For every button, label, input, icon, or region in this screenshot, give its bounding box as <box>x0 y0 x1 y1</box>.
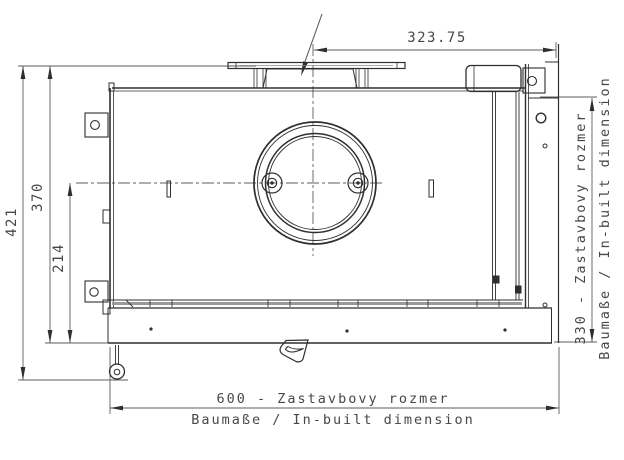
frame-holes <box>536 113 547 307</box>
dim-right-depth: 330 - Zastavbovy rozmer <box>573 112 589 345</box>
top-right-housing <box>466 66 545 94</box>
dim-top-width: 323.75 <box>407 30 467 46</box>
bracket-hole-bottom-left <box>90 288 98 296</box>
stove-body-outline <box>108 44 559 343</box>
dimension-lines <box>18 14 597 414</box>
dimension-drawing-svg: 323.75 421 370 214 330 - Zastavbovy rozm… <box>0 0 624 460</box>
dim-lower-height: 214 <box>51 243 67 273</box>
dim-bottom-width-sub: Baumaße / In-built dimension <box>191 412 475 428</box>
dim-right-depth-sub: Baumaße / In-built dimension <box>597 76 613 360</box>
dim-total-height: 421 <box>4 207 20 237</box>
plate-screws <box>149 327 506 332</box>
dim-upper-height: 370 <box>30 182 46 212</box>
bracket-hole-top-left <box>91 121 100 130</box>
left-brackets <box>85 113 110 314</box>
interior-details <box>167 92 521 300</box>
technical-drawing-canvas: 323.75 421 370 214 330 - Zastavbovy rozm… <box>0 0 624 460</box>
dim-bottom-width: 600 - Zastavbovy rozmer <box>217 391 450 407</box>
pendant <box>110 345 125 379</box>
